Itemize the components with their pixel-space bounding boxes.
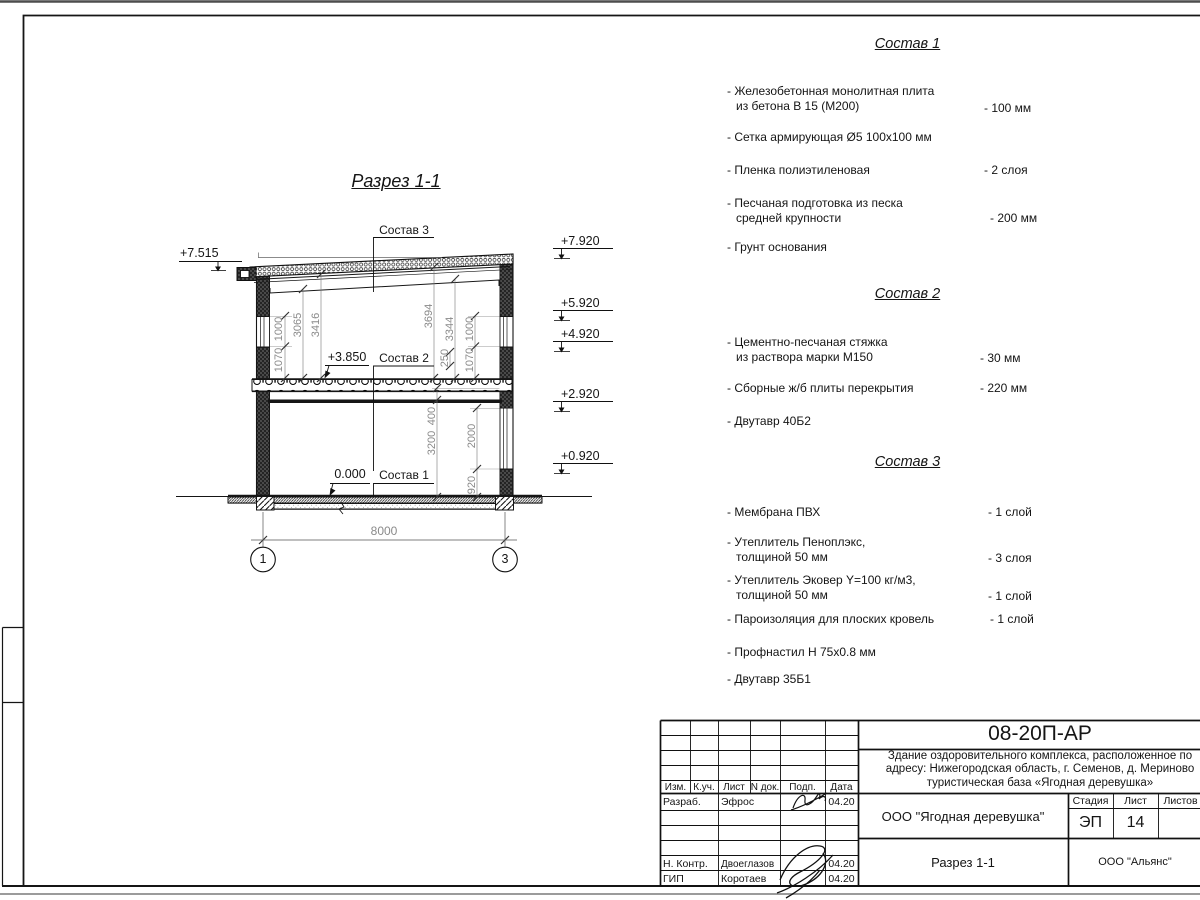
elevation-mark-2920 <box>553 402 613 413</box>
composition-item: - Сборные ж/б плиты перекрытия <box>727 381 913 395</box>
row-name: Эфрос <box>721 796 754 808</box>
col-izm: Изм. <box>661 782 690 793</box>
foundation-right <box>496 497 514 511</box>
stage-label: Стадия <box>1068 795 1113 807</box>
row-date: 04.20 <box>825 796 858 808</box>
dim-r3694: 3694 <box>423 296 435 336</box>
composition-value: - 30 мм <box>980 351 1021 365</box>
composition-title: Состав 2 <box>845 286 970 302</box>
elevation-right-3: +2.920 <box>561 387 600 401</box>
composition-item: - Профнастил Н 75x0.8 мм <box>727 645 876 659</box>
axis-dimension <box>251 512 518 572</box>
sheet-label: Лист <box>1113 795 1158 807</box>
composition-item: - Утеплитель Эковер Y=100 кг/м3, <box>727 573 916 587</box>
composition-title: Состав 1 <box>845 36 970 52</box>
dim-f2000: 2000 <box>466 416 478 456</box>
row-name: Двоеглазов <box>721 859 774 870</box>
customer-org: ООО "Ягодная деревушка" <box>858 809 1068 824</box>
composition-item: - Мембрана ПВХ <box>727 505 820 519</box>
col-kuch: К.уч. <box>690 782 718 793</box>
elevation-right-2: +4.920 <box>561 327 600 341</box>
project-description-line1: Здание оздоровительного комплекса, распо… <box>858 750 1200 762</box>
row-date: 04.20 <box>825 858 858 870</box>
view-name: Разрез 1-1 <box>858 855 1068 870</box>
layer-label-roof: Состав 3 <box>373 223 435 237</box>
composition-item: толщиной 50 мм <box>736 550 828 564</box>
level-floor2: +3.850 <box>324 350 370 364</box>
signature-razrab <box>791 793 827 810</box>
composition-value: - 100 мм <box>984 101 1031 115</box>
sheets-label: Листов <box>1158 795 1200 807</box>
composition-value: - 200 мм <box>990 211 1037 225</box>
dim-l3065: 3065 <box>292 305 304 345</box>
project-description-line3: туристическая база «Ягодная деревушка» <box>858 777 1200 789</box>
row-role: Н. Контр. <box>663 858 708 870</box>
dim-r1070: 1070 <box>464 340 476 380</box>
section-linework <box>176 238 613 572</box>
elevation-right-0: +7.920 <box>561 234 600 248</box>
row-date: 04.20 <box>825 873 858 885</box>
elevation-right-1: +5.920 <box>561 296 600 310</box>
row-name: Коротаев <box>721 873 766 885</box>
design-company: ООО "Альянс" <box>1068 856 1200 868</box>
axis-number-1: 1 <box>251 552 275 566</box>
col-ndok: N док. <box>748 782 782 793</box>
composition-item: - Грунт основания <box>727 240 827 254</box>
composition-item: - Двутавр 35Б1 <box>727 672 811 686</box>
col-data: Дата <box>825 782 858 793</box>
row-role: ГИП <box>663 873 684 885</box>
elevation-mark-7515 <box>179 262 242 272</box>
foundation-left <box>257 497 275 511</box>
composition-value: - 3 слоя <box>988 551 1032 565</box>
section-title: Разрез 1-1 <box>330 171 462 192</box>
right-wall <box>500 254 513 497</box>
dim-overall-width: 8000 <box>362 524 406 538</box>
composition-item: - Железобетонная монолитная плита <box>727 84 934 98</box>
stage-value: ЭП <box>1068 814 1113 832</box>
composition-item: средней крупности <box>736 211 841 225</box>
col-list: Лист <box>718 782 750 793</box>
elevation-right-4: +0.920 <box>561 449 600 463</box>
composition-value: - 220 мм <box>980 381 1027 395</box>
composition-item: толщиной 50 мм <box>736 588 828 602</box>
elevation-mark-0920 <box>553 464 613 475</box>
composition-item: - Утеплитель Пеноплэкс, <box>727 535 865 549</box>
composition-item: - Пароизоляция для плоских кровель <box>727 612 934 626</box>
floor2-beam <box>268 400 502 404</box>
layer-label-floor2: Состав 2 <box>373 351 435 365</box>
dim-f920: 920 <box>466 465 478 505</box>
composition-value: - 1 слой <box>990 612 1034 626</box>
composition-item: - Пленка полиэтиленовая <box>727 163 870 177</box>
signature-gip <box>777 846 833 898</box>
composition-value: - 1 слой <box>988 589 1032 603</box>
composition-item: - Песчаная подготовка из песка <box>727 196 903 210</box>
elevation-mark-5920 <box>553 311 613 322</box>
composition-item: - Двутавр 40Б2 <box>727 414 811 428</box>
composition-item: - Сетка армирующая Ø5 100x100 мм <box>727 130 932 144</box>
row-role: Разраб. <box>663 796 701 808</box>
composition-value: - 2 слоя <box>984 163 1028 177</box>
dim-l1000: 1000 <box>273 309 285 349</box>
project-description-line2: адресу: Нижегородская область, г. Семено… <box>858 763 1200 775</box>
level-floor1: 0.000 <box>328 467 372 481</box>
composition-item: из бетона В 15 (М200) <box>736 99 859 113</box>
document-code: 08-20П-АР <box>858 722 1200 746</box>
sheet-number: 14 <box>1113 814 1158 832</box>
composition-title: Состав 3 <box>845 454 970 470</box>
drawing-sheet: { "sheet": { "drawing_title": "Разрез 1-… <box>0 0 1200 900</box>
roof <box>237 253 513 294</box>
elevation-left-top: +7.515 <box>180 246 219 260</box>
dim-f400: 400 <box>426 396 438 436</box>
composition-value: - 1 слой <box>988 505 1032 519</box>
ground-slab <box>176 496 592 514</box>
axis-number-3: 3 <box>493 552 517 566</box>
col-podp: Подп. <box>780 782 825 793</box>
floor2-slab <box>252 379 512 403</box>
elevation-mark-7920 <box>553 249 613 260</box>
dim-l3416: 3416 <box>310 305 322 345</box>
dim-r250: 250 <box>439 338 451 378</box>
composition-item: из раствора марки М150 <box>736 350 873 364</box>
layer-label-floor1: Состав 1 <box>373 468 435 482</box>
composition-item: - Цементно-песчаная стяжка <box>727 335 888 349</box>
elevation-mark-4920 <box>553 342 613 353</box>
left-margin-stamps <box>3 628 24 887</box>
